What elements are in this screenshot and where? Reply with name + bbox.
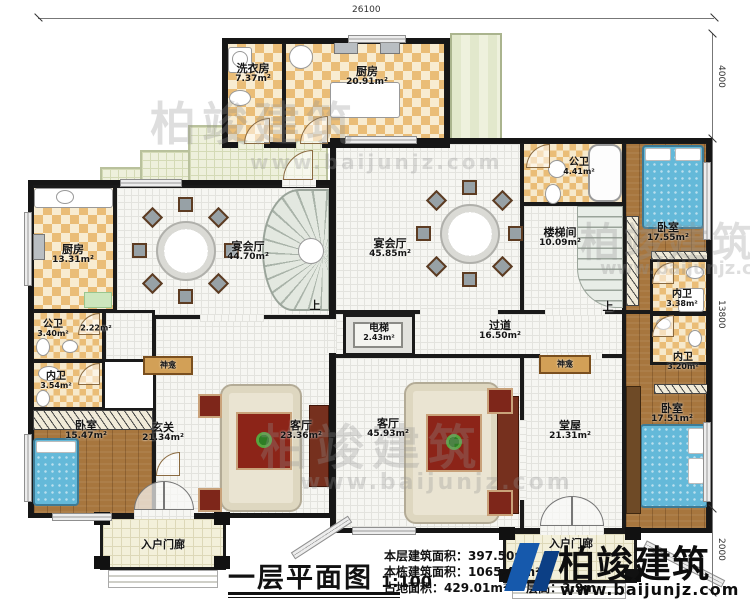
- side-table: [198, 394, 222, 418]
- label-laundry: 洗衣房7.37m²: [235, 63, 271, 85]
- window: [120, 179, 182, 187]
- label-inner-bath-354: 内卫3.54m²: [40, 371, 72, 391]
- side-table: [487, 388, 513, 414]
- range-hood-icon: [380, 42, 400, 54]
- label-living-left: 客厅23.36m²: [280, 420, 322, 442]
- opening: [420, 308, 498, 316]
- dimension-right-bottom: 2000: [716, 538, 726, 561]
- room-closet: [103, 310, 155, 362]
- sink-icon: [229, 90, 251, 106]
- side-table: [487, 490, 513, 516]
- opening: [519, 420, 527, 500]
- title-underline: [228, 592, 400, 595]
- tv-cabinet: [309, 405, 329, 487]
- label-bedroom-left: 卧室15.47m²: [65, 420, 107, 442]
- label-bedroom-top-right: 卧室17.55m²: [647, 222, 689, 244]
- dining-chair: [132, 243, 147, 258]
- toilet-icon: [36, 390, 50, 407]
- wardrobe: [626, 216, 639, 306]
- label-pub-bath-left: 公卫3.40m²: [37, 319, 69, 339]
- label-corridor: 过道16.50m²: [479, 320, 521, 342]
- opening: [200, 314, 264, 322]
- dimension-right-mid: 13800: [716, 300, 726, 329]
- floor-plan: 柏竣建筑 www.baijunjz.com 柏竣建筑 www.baijunjz.…: [0, 0, 750, 606]
- label-foyer: 玄关21.34m²: [142, 422, 184, 444]
- dimension-line-top: [38, 18, 714, 19]
- side-table: [198, 488, 222, 512]
- sink-icon: [289, 45, 313, 69]
- pillow: [645, 148, 671, 161]
- terrace-strip: [450, 33, 502, 148]
- label-pub-bath-right: 公卫4.41m²: [563, 157, 595, 177]
- label-shrine-left: 神龛: [160, 362, 176, 371]
- dining-chair: [178, 197, 193, 212]
- dimension-line-right: [712, 33, 713, 595]
- window: [52, 513, 112, 521]
- entry-gap-left: [134, 509, 194, 519]
- stove-icon: [33, 234, 45, 260]
- window: [703, 422, 711, 502]
- dimension-right-top: 4000: [716, 65, 726, 88]
- porch-column: [499, 527, 515, 540]
- label-stairwell: 楼梯间10.09m²: [539, 227, 581, 249]
- pillow: [675, 148, 701, 161]
- dimension-top-value: 26100: [352, 5, 381, 15]
- floor-mat: [84, 292, 112, 308]
- label-shrine-right: 神龛: [557, 361, 573, 370]
- dining-chair: [462, 180, 477, 195]
- plant-icon: [446, 434, 462, 450]
- label-kitchen-top: 厨房20.91m²: [346, 66, 388, 88]
- window: [345, 136, 417, 144]
- title-underline-thin: [228, 597, 400, 598]
- dining-chair: [508, 226, 523, 241]
- desk: [626, 386, 641, 514]
- label-bedroom-bottom-right: 卧室17.51m²: [651, 403, 693, 425]
- plant-icon: [256, 432, 272, 448]
- label-living-right: 客厅45.93m²: [367, 418, 409, 440]
- pillow: [36, 441, 76, 453]
- label-stair-up-left: 上: [310, 300, 321, 312]
- toilet-icon: [36, 338, 50, 356]
- label-stair-up-right: 上: [603, 301, 614, 313]
- dining-table: [440, 204, 500, 264]
- window: [24, 434, 32, 502]
- label-banquet-left: 宴会厅44.70m²: [227, 241, 269, 263]
- label-porch-left: 入户门廊: [141, 539, 185, 551]
- porch-column: [214, 512, 230, 525]
- pillow: [688, 458, 704, 484]
- label-closet: 2.22m²: [80, 325, 112, 334]
- toilet-icon: [545, 184, 561, 204]
- dining-chair: [178, 289, 193, 304]
- pillow: [688, 428, 704, 454]
- toilet-icon: [686, 266, 704, 279]
- sink-icon: [62, 340, 78, 353]
- label-inner-bath-338: 内卫3.38m²: [666, 289, 698, 309]
- window: [352, 527, 416, 535]
- label-inner-bath-320: 内卫3.20m²: [667, 352, 699, 372]
- window: [703, 162, 711, 240]
- window: [24, 212, 32, 286]
- sink-icon: [56, 190, 74, 204]
- window: [348, 35, 406, 43]
- label-kitchen-left: 厨房13.31m²: [52, 244, 94, 266]
- porch-column: [94, 556, 110, 569]
- dining-chair: [416, 226, 431, 241]
- label-banquet-right: 宴会厅45.85m²: [369, 238, 411, 260]
- dining-chair: [462, 272, 477, 287]
- stair-landing: [298, 238, 324, 264]
- stove-icon: [334, 42, 358, 54]
- label-hall-right: 堂屋21.31m²: [549, 420, 591, 442]
- wardrobe: [654, 384, 708, 394]
- label-elevator: 电梯2.43m²: [363, 323, 395, 343]
- wardrobe: [651, 251, 709, 260]
- opening: [327, 319, 336, 353]
- opening: [545, 308, 605, 316]
- dining-table: [156, 221, 216, 281]
- porch-left-steps: [108, 570, 218, 588]
- toilet-icon: [688, 330, 702, 347]
- bay-window: [291, 516, 352, 560]
- logo-url: www.baijunjz.com: [560, 580, 739, 599]
